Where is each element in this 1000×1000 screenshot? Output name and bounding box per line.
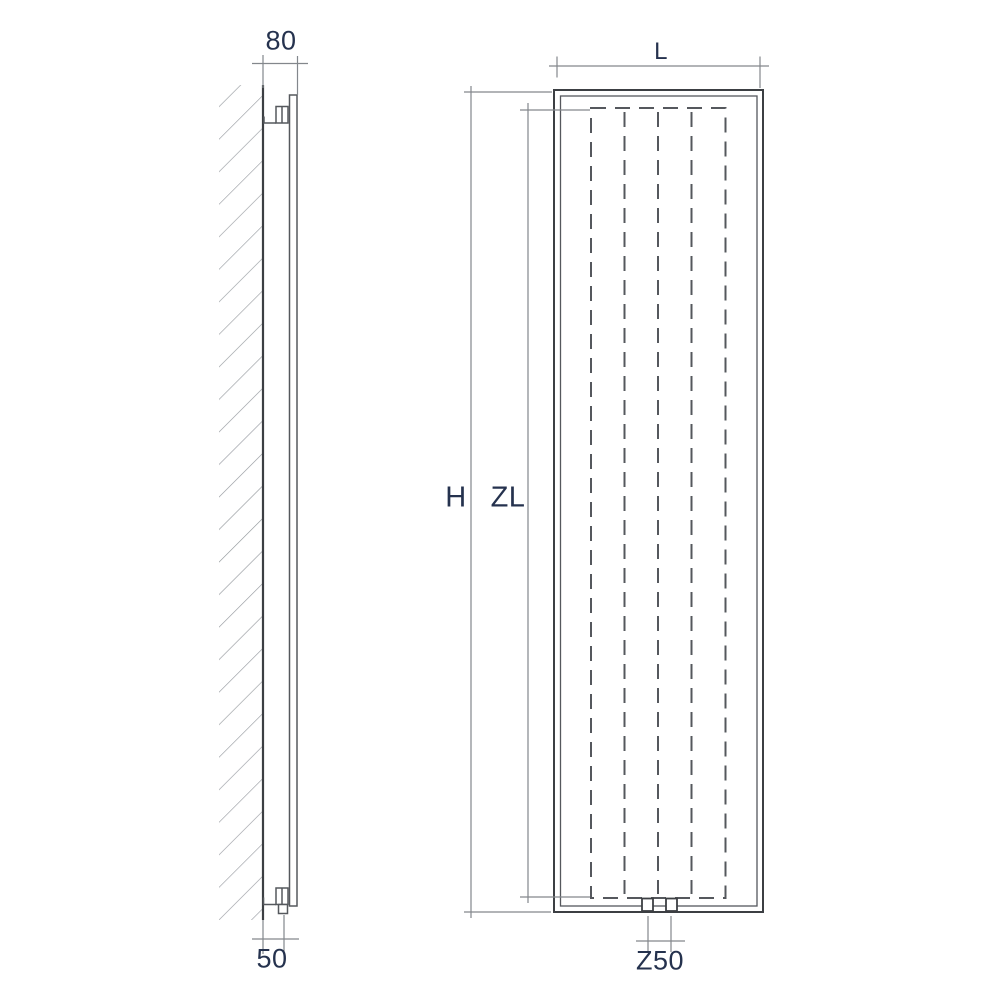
radiator-technical-drawing: 80 L H ZL 50 Z50 [0,0,1000,1000]
dimension-label-Z50: Z50 [636,948,684,975]
dimension-label-L: L [654,40,668,64]
side-view [219,55,308,954]
connection-stub-right [666,899,677,912]
side-connection-stub [279,905,288,914]
dimension-label-80: 80 [265,28,296,55]
radiator-panel-profile [290,95,298,906]
connection-stub-left [642,899,653,912]
dimension-label-50: 50 [256,946,287,973]
bottom-bracket [264,888,289,914]
wall-hatch [219,85,263,920]
dimension-label-ZL: ZL [491,484,526,513]
top-bracket [264,107,288,124]
dimension-label-H: H [445,484,466,513]
